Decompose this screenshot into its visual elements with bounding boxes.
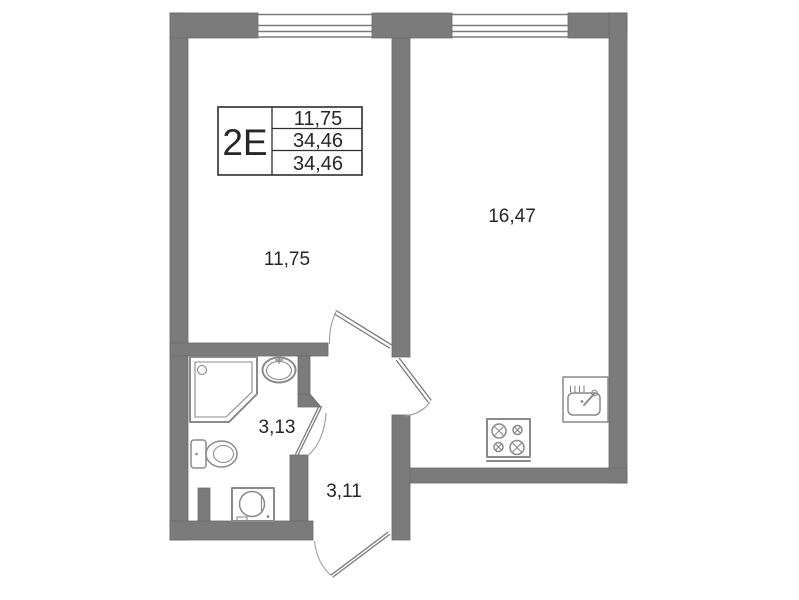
bathroom-door-jamb-flare	[298, 394, 321, 407]
bathroom-right-wall-lower	[290, 455, 308, 521]
door-swing-arc	[308, 413, 327, 456]
kitchen-sink	[563, 377, 608, 422]
washbasin	[263, 356, 296, 383]
bathroom-right-wall-upper	[298, 356, 310, 394]
bathroom-bottom-wall	[170, 521, 313, 540]
door-swing-arc	[404, 402, 430, 416]
entrance-door	[315, 532, 390, 577]
legend-area-row-1: 11,75	[294, 108, 343, 130]
bathroom-area-label: 3,13	[259, 417, 296, 438]
legend-flat-type: 2Е	[222, 122, 267, 163]
top-wall-segment-middle	[372, 13, 452, 38]
living-room-area-label: 11,75	[264, 249, 310, 270]
right-wall	[609, 13, 627, 483]
floorplan-svg: 11,75 16,47 3,13 3,11 2Е 11,75 34,46 34,…	[0, 0, 799, 600]
divider-wall-lower	[392, 415, 410, 540]
kitchen-door	[397, 359, 432, 417]
burner-large-top-left	[492, 424, 506, 438]
window-left	[258, 15, 372, 38]
duct-niche-stub-wall	[198, 488, 210, 521]
burner-small-bottom-left	[494, 443, 503, 452]
walls	[170, 13, 627, 540]
top-wall-segment-left	[170, 13, 258, 38]
living-room-bottom-wall	[170, 343, 328, 356]
divider-wall-upper	[392, 38, 410, 357]
burner-small-top-right	[513, 426, 522, 435]
kitchen-bottom-wall	[410, 468, 627, 483]
bathroom-door	[296, 406, 326, 456]
toilet	[191, 440, 237, 468]
living-room-door	[329, 311, 391, 349]
legend-area-row-3: 34,46	[293, 153, 343, 175]
kitchen-area-label: 16,47	[488, 206, 536, 227]
left-wall	[170, 13, 188, 540]
washing-machine	[232, 488, 274, 521]
floorplan-image: 11,75 16,47 3,13 3,11 2Е 11,75 34,46 34,…	[0, 0, 799, 600]
legend-area-row-2: 34,46	[293, 130, 343, 152]
window-right	[452, 15, 568, 38]
legend-table: 2Е 11,75 34,46 34,46	[218, 107, 362, 175]
cooktop	[487, 419, 530, 461]
shower-cabin	[190, 357, 257, 422]
hallway-area-label: 3,11	[326, 481, 362, 502]
burner-large-bottom-right	[510, 441, 524, 455]
door-swing-arc	[315, 541, 332, 576]
door-swing-arc	[329, 312, 336, 344]
